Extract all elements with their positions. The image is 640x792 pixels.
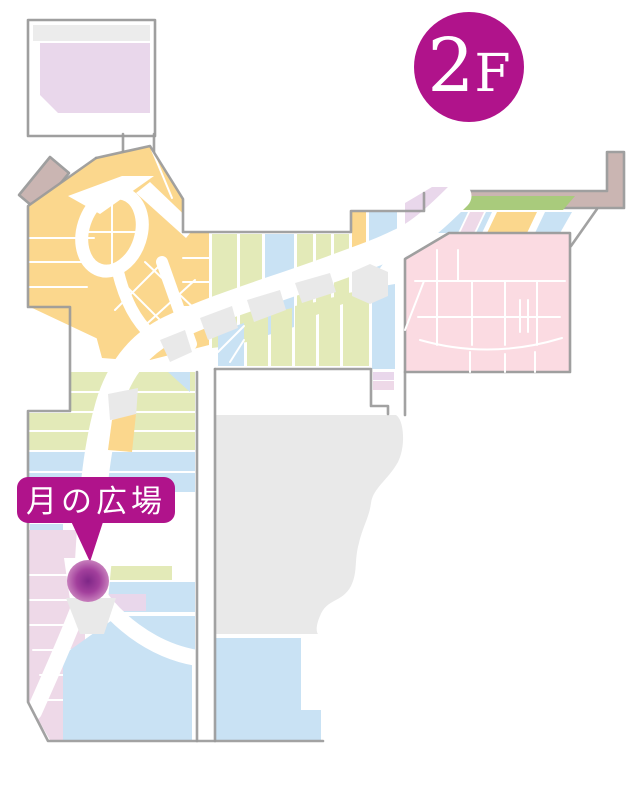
gray-hall [215,415,403,634]
floor-badge: 2F [414,12,524,122]
kiosk-island [352,264,388,304]
annex-gray-strip [33,25,150,41]
shop-unit [373,372,394,380]
shop-unit [108,566,172,580]
zone-centre [197,369,405,741]
map-edge [571,209,597,246]
floor-map-page: 2F 月の広場 [0,0,640,792]
blue-block-centre [215,638,321,740]
shop-unit [487,212,537,233]
shop-unit [535,212,572,233]
shop-unit [373,381,394,390]
location-marker [67,560,109,602]
corridor-edges [197,369,215,741]
shop-unit [271,308,292,366]
annex-lavender-hall [40,43,150,113]
pink-block [405,233,570,372]
shop-unit [319,296,340,366]
shop-unit [247,315,268,366]
floor-map: 2F 月の広場 [0,0,640,792]
shop-unit [295,302,316,366]
callout-label: 月の広場 [26,484,166,520]
